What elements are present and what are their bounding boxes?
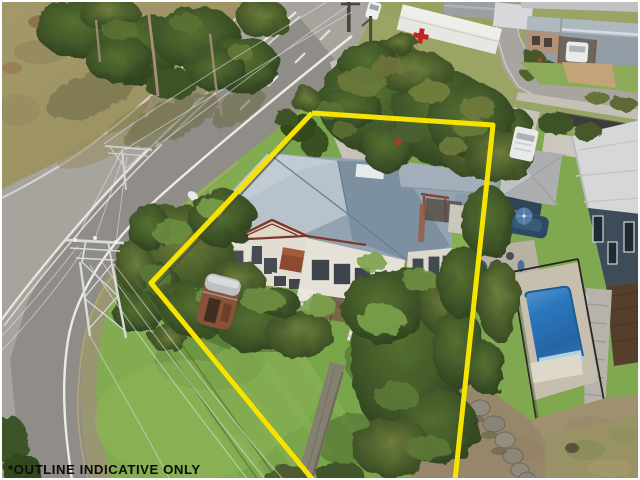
svg-text:*OUTLINE INDICATIVE ONLY: *OUTLINE INDICATIVE ONLY bbox=[8, 462, 201, 477]
